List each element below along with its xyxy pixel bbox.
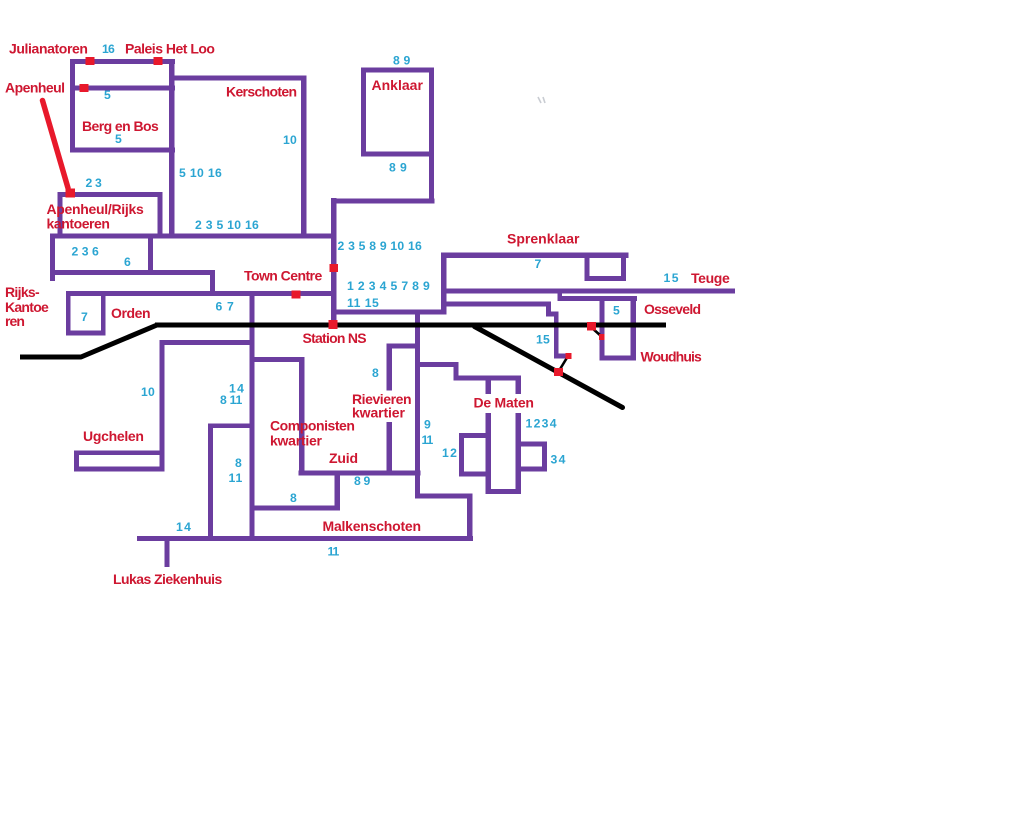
svg-text:8 11: 8 11: [220, 393, 242, 407]
svg-text:16: 16: [102, 42, 115, 56]
svg-text:Lukas Ziekenhuis: Lukas Ziekenhuis: [113, 571, 222, 587]
svg-text:8 9: 8 9: [389, 160, 407, 174]
svg-text:Teuge: Teuge: [691, 270, 730, 286]
svg-text:Station NS: Station NS: [303, 330, 367, 346]
svg-text:3 4: 3 4: [551, 452, 566, 466]
svg-text:8: 8: [290, 491, 297, 505]
svg-text:11: 11: [422, 433, 434, 447]
svg-text:9: 9: [424, 417, 431, 431]
svg-text:Woudhuis: Woudhuis: [641, 349, 703, 365]
svg-text:6 7: 6 7: [216, 299, 235, 313]
svg-text:kwartier: kwartier: [352, 405, 405, 421]
svg-text:Paleis Het Loo: Paleis Het Loo: [125, 41, 214, 57]
svg-text:Anklaar: Anklaar: [372, 77, 424, 93]
svg-text:1 2 3 4 5 7 8 9: 1 2 3 4 5 7 8 9: [347, 279, 430, 293]
svg-text:10: 10: [141, 385, 155, 399]
svg-text:10: 10: [283, 133, 297, 147]
svg-text:Ugchelen: Ugchelen: [83, 428, 144, 444]
svg-text:11: 11: [328, 544, 340, 558]
svg-text:5: 5: [104, 88, 111, 102]
svg-text:15: 15: [664, 271, 681, 285]
svg-text:8: 8: [235, 456, 242, 470]
svg-text:7: 7: [81, 310, 88, 324]
svg-text:Apenheul: Apenheul: [5, 80, 64, 96]
svg-text:Zuid: Zuid: [329, 450, 358, 466]
svg-text:5: 5: [115, 132, 122, 146]
svg-text:1 2: 1 2: [442, 446, 457, 460]
svg-text:2 3 5 8 9 10 16: 2 3 5 8 9 10 16: [338, 239, 422, 253]
svg-text:1 4: 1 4: [176, 520, 191, 534]
svg-text:1 2 3 4: 1 2 3 4: [526, 416, 557, 430]
svg-text:8 9: 8 9: [354, 474, 371, 488]
svg-text:Town Centre: Town Centre: [244, 268, 322, 284]
svg-text:15: 15: [536, 332, 550, 346]
svg-text:Componisten: Componisten: [270, 418, 355, 434]
svg-text:Rijks-: Rijks-: [5, 284, 40, 300]
svg-text:Sprenklaar: Sprenklaar: [507, 231, 580, 247]
svg-text:Osseveld: Osseveld: [644, 301, 700, 317]
svg-text:2 3 5 10 16: 2 3 5 10 16: [195, 218, 259, 232]
svg-text:8: 8: [372, 366, 379, 380]
svg-text:Malkenschoten: Malkenschoten: [323, 518, 421, 534]
svg-text:7: 7: [535, 257, 542, 271]
svg-text:kantoeren: kantoeren: [47, 216, 110, 232]
svg-text:11: 11: [229, 471, 244, 485]
svg-text:6: 6: [124, 255, 131, 269]
svg-text:11 15: 11 15: [347, 296, 379, 310]
svg-text:Julianatoren: Julianatoren: [9, 41, 88, 57]
svg-text:8 9: 8 9: [393, 53, 411, 67]
svg-text:kwartier: kwartier: [270, 433, 322, 449]
svg-text:De Maten: De Maten: [474, 395, 534, 411]
svg-text:Orden: Orden: [111, 305, 150, 321]
svg-text:ren: ren: [5, 313, 24, 329]
svg-text:5: 5: [613, 303, 620, 317]
svg-text:Kerschoten: Kerschoten: [226, 84, 296, 100]
svg-text:2 3 6: 2 3 6: [72, 244, 99, 258]
svg-text:2 3: 2 3: [86, 176, 103, 190]
svg-text:5 10 16: 5 10 16: [179, 166, 222, 180]
